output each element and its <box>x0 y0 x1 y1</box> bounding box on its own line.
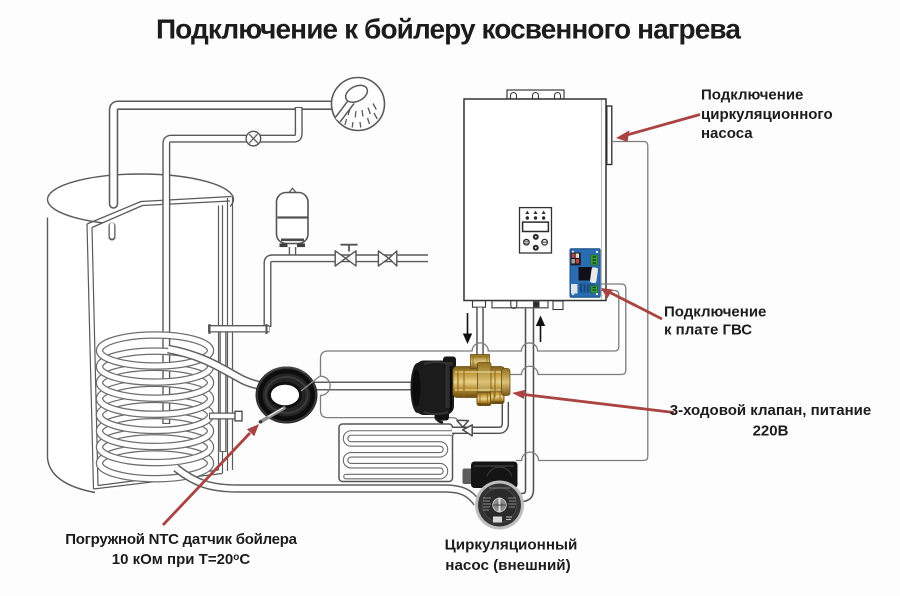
svg-text:насос (внешний): насос (внешний) <box>445 557 570 574</box>
svg-text:насоса: насоса <box>701 125 753 142</box>
svg-text:10 кОм при Т=20оС: 10 кОм при Т=20оС <box>112 551 251 568</box>
svg-text:Подключение: Подключение <box>701 87 803 104</box>
svg-text:220В: 220В <box>753 423 789 440</box>
svg-text:к плате ГВС: к плате ГВС <box>664 322 752 339</box>
svg-text:Погружной NTC датчик бойлера: Погружной NTC датчик бойлера <box>65 531 297 548</box>
svg-text:3-ходовой клапан, питание: 3-ходовой клапан, питание <box>670 402 871 419</box>
svg-text:циркуляционного: циркуляционного <box>701 106 833 123</box>
svg-text:Подключение: Подключение <box>664 304 766 321</box>
svg-text:Циркуляционный: Циркуляционный <box>445 537 578 554</box>
svg-text:Подключение к бойлеру косвенно: Подключение к бойлеру косвенного нагрева <box>156 14 741 45</box>
